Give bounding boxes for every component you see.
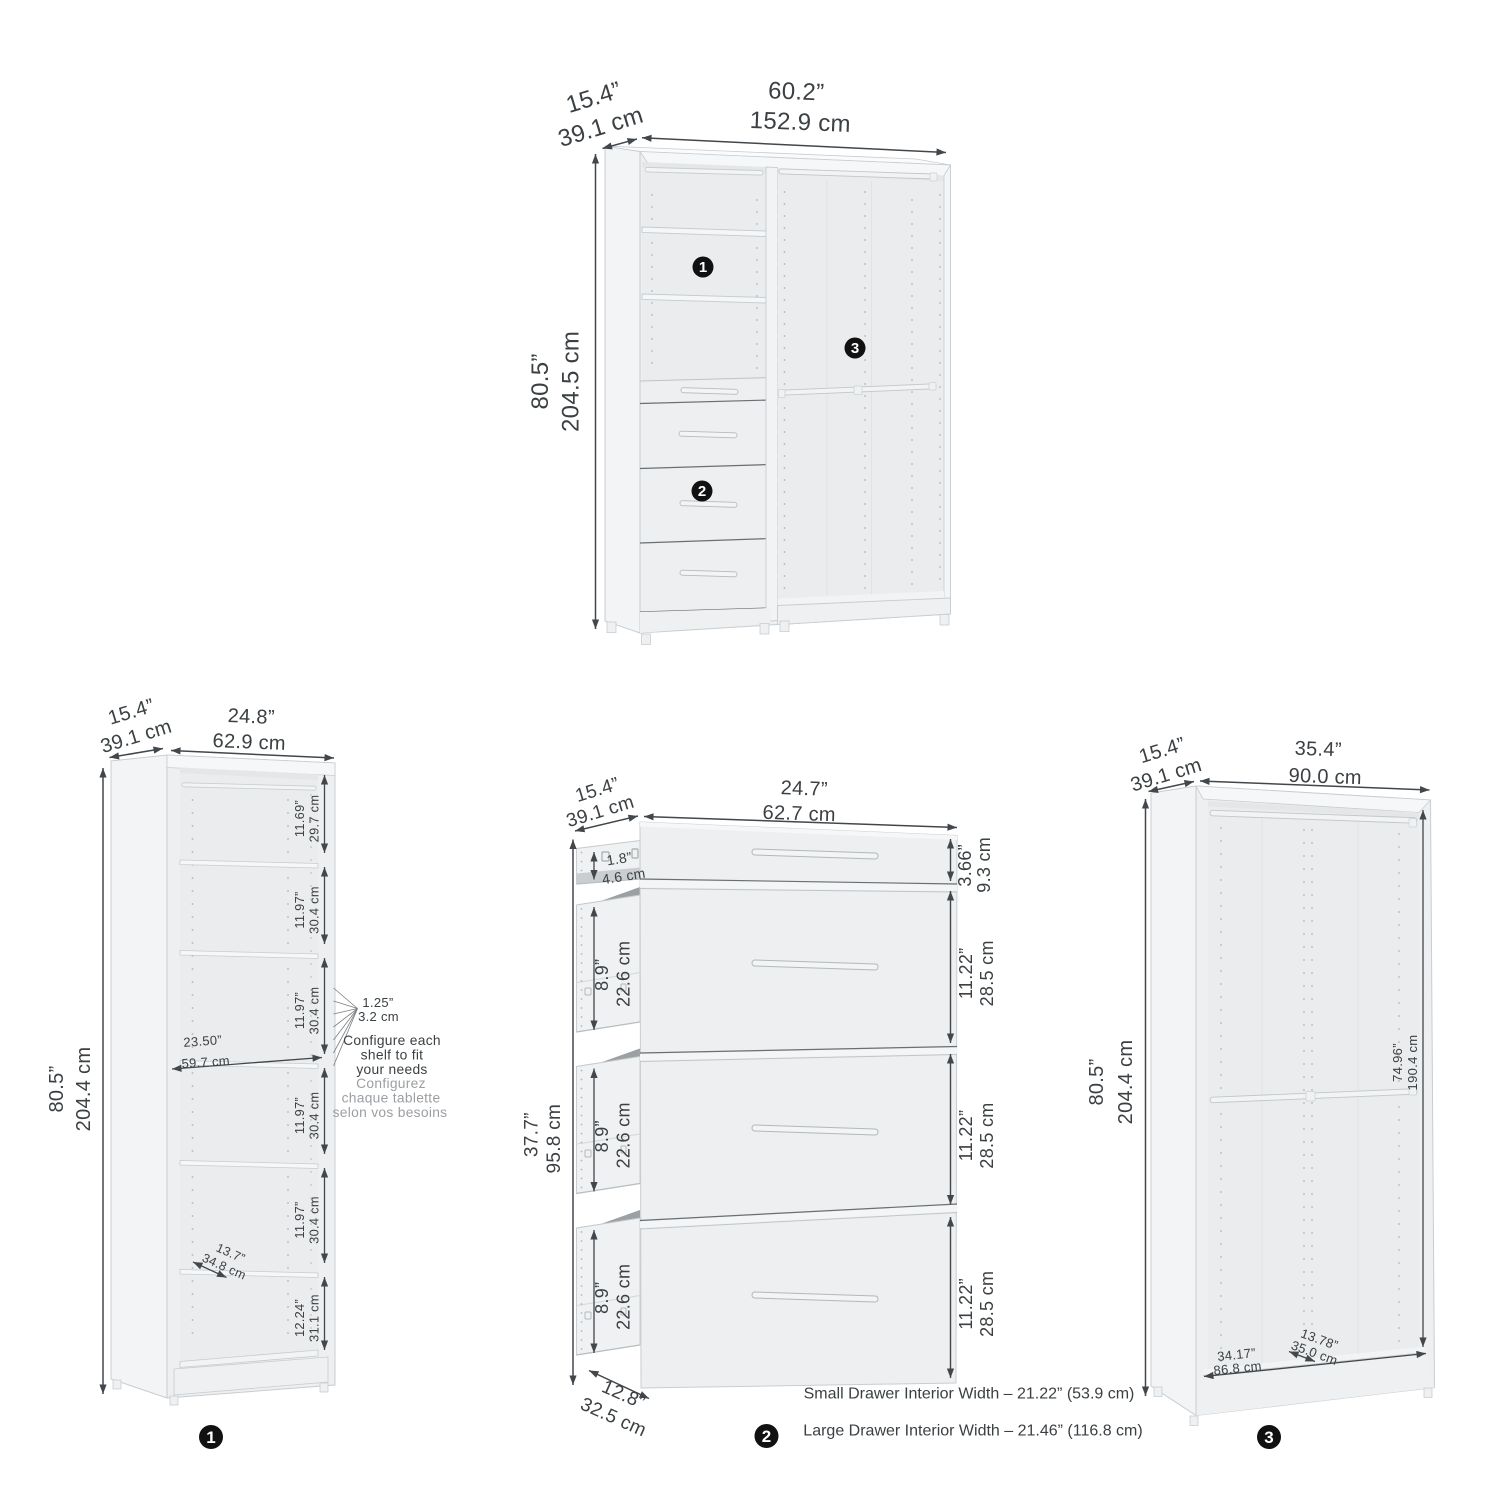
svg-text:204.5 cm: 204.5 cm bbox=[558, 331, 585, 432]
svg-text:22.6 cm: 22.6 cm bbox=[614, 1264, 634, 1330]
svg-text:11.22”: 11.22” bbox=[956, 1278, 976, 1330]
svg-text:shelf to fit: shelf to fit bbox=[361, 1047, 424, 1062]
svg-text:your needs: your needs bbox=[356, 1062, 427, 1077]
svg-text:Configurez: Configurez bbox=[356, 1076, 426, 1091]
svg-text:1: 1 bbox=[699, 259, 707, 276]
svg-text:28.5 cm: 28.5 cm bbox=[977, 940, 997, 1006]
svg-text:3.66”: 3.66” bbox=[955, 844, 975, 887]
svg-text:24.8”: 24.8” bbox=[227, 705, 275, 729]
svg-text:23.50”: 23.50” bbox=[183, 1032, 223, 1050]
svg-text:28.5 cm: 28.5 cm bbox=[977, 1102, 997, 1168]
svg-text:chaque tablette: chaque tablette bbox=[342, 1090, 441, 1105]
svg-text:62.7 cm: 62.7 cm bbox=[762, 802, 836, 827]
svg-text:90.0 cm: 90.0 cm bbox=[1288, 765, 1362, 790]
svg-text:12.24”: 12.24” bbox=[292, 1299, 307, 1337]
svg-text:62.9 cm: 62.9 cm bbox=[212, 730, 286, 755]
svg-text:3: 3 bbox=[1264, 1428, 1273, 1447]
svg-text:11.97”: 11.97” bbox=[292, 891, 307, 928]
svg-text:29.7 cm: 29.7 cm bbox=[307, 795, 322, 843]
svg-text:60.2”: 60.2” bbox=[768, 77, 825, 106]
svg-text:Configure each: Configure each bbox=[343, 1033, 441, 1048]
svg-text:31.1 cm: 31.1 cm bbox=[307, 1294, 322, 1342]
svg-text:35.4”: 35.4” bbox=[1294, 738, 1342, 762]
svg-text:9.3 cm: 9.3 cm bbox=[974, 837, 994, 893]
svg-text:selon vos besoins: selon vos besoins bbox=[333, 1105, 448, 1120]
svg-text:11.97”: 11.97” bbox=[292, 1097, 307, 1134]
svg-text:37.7”: 37.7” bbox=[522, 1112, 543, 1157]
svg-text:152.9 cm: 152.9 cm bbox=[749, 107, 851, 138]
svg-text:1.25”: 1.25” bbox=[362, 995, 393, 1010]
svg-text:8.9”: 8.9” bbox=[592, 959, 612, 991]
svg-text:95.8 cm: 95.8 cm bbox=[544, 1104, 565, 1174]
svg-text:30.4 cm: 30.4 cm bbox=[307, 886, 322, 934]
svg-text:1: 1 bbox=[206, 1428, 215, 1447]
svg-text:74.96”: 74.96” bbox=[1390, 1043, 1405, 1082]
svg-text:80.5”: 80.5” bbox=[46, 1065, 68, 1112]
svg-text:3: 3 bbox=[851, 340, 859, 357]
svg-text:Large Drawer Interior Width –: Large Drawer Interior Width – 21.46” (11… bbox=[803, 1423, 1142, 1440]
svg-text:80.5”: 80.5” bbox=[527, 353, 554, 409]
svg-text:190.4 cm: 190.4 cm bbox=[1405, 1035, 1420, 1091]
svg-text:22.6 cm: 22.6 cm bbox=[614, 1102, 634, 1168]
svg-text:30.4 cm: 30.4 cm bbox=[307, 1092, 322, 1140]
svg-text:Small Drawer Interior Width –: Small Drawer Interior Width – 21.22” (53… bbox=[804, 1386, 1135, 1403]
svg-text:11.97”: 11.97” bbox=[292, 1201, 307, 1238]
svg-text:8.9”: 8.9” bbox=[592, 1282, 612, 1314]
svg-text:30.4 cm: 30.4 cm bbox=[307, 1196, 322, 1244]
svg-text:22.6 cm: 22.6 cm bbox=[614, 941, 634, 1007]
svg-text:24.7”: 24.7” bbox=[780, 777, 828, 801]
svg-text:204.4 cm: 204.4 cm bbox=[1115, 1040, 1137, 1125]
svg-text:30.4 cm: 30.4 cm bbox=[307, 987, 322, 1035]
svg-text:3.2 cm: 3.2 cm bbox=[358, 1009, 399, 1024]
svg-text:11.69”: 11.69” bbox=[292, 800, 307, 837]
svg-text:204.4 cm: 204.4 cm bbox=[73, 1047, 95, 1132]
svg-text:2: 2 bbox=[762, 1427, 771, 1446]
svg-text:11.97”: 11.97” bbox=[292, 992, 307, 1029]
svg-text:28.5 cm: 28.5 cm bbox=[977, 1271, 997, 1337]
svg-text:2: 2 bbox=[698, 483, 706, 500]
svg-text:8.9”: 8.9” bbox=[592, 1120, 612, 1152]
svg-text:11.22”: 11.22” bbox=[956, 1110, 976, 1162]
svg-text:11.22”: 11.22” bbox=[956, 948, 976, 1000]
svg-text:80.5”: 80.5” bbox=[1086, 1058, 1108, 1105]
